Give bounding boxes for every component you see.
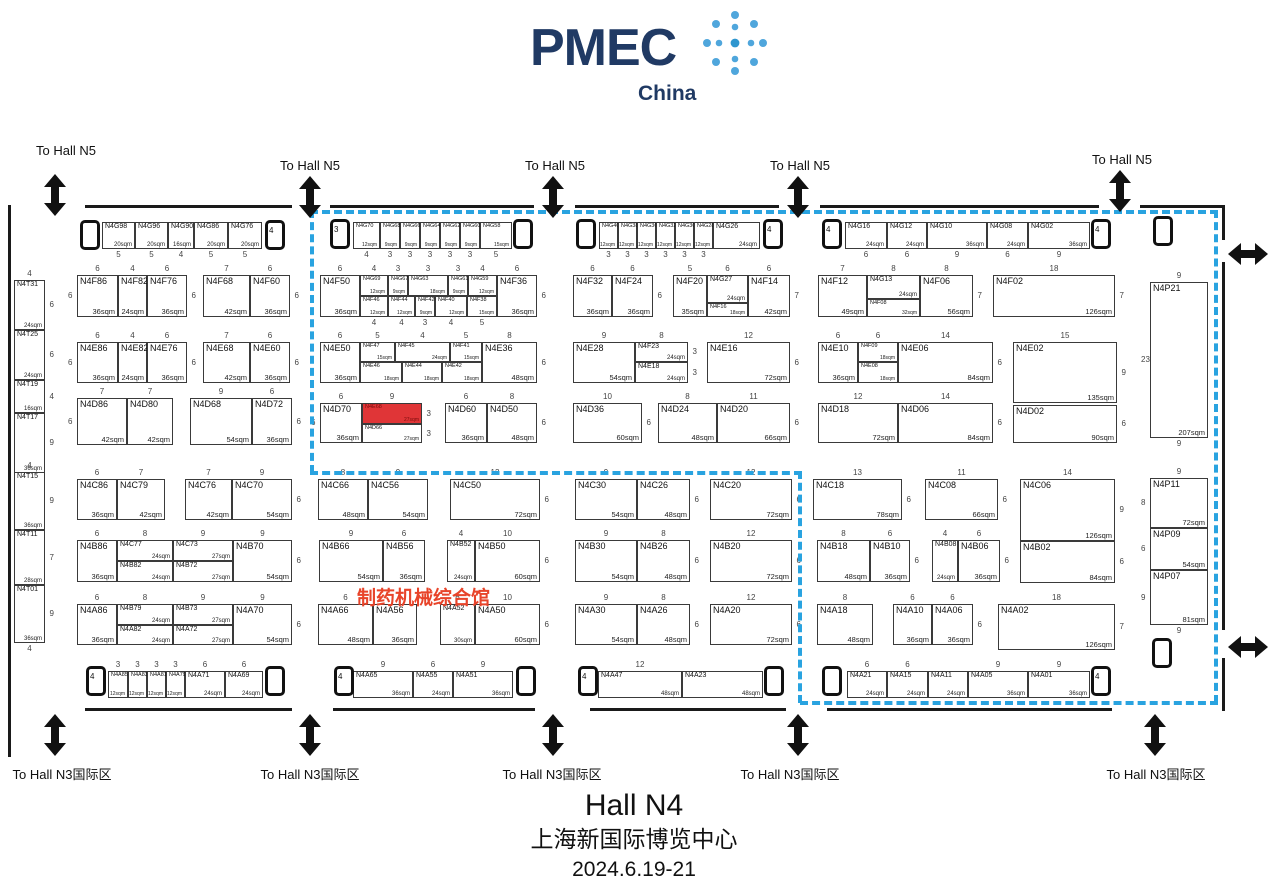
booth-area: 36sqm: [1069, 691, 1087, 697]
booth-number: N4A79: [169, 672, 186, 678]
booth-N4F23[interactable]: N4F2324sqm83: [635, 342, 688, 362]
booth-N4P07[interactable]: N4P0781sqm99: [1150, 570, 1208, 625]
booth-N4F40[interactable]: N4F4012sqm4: [435, 296, 467, 317]
booth-N4F42[interactable]: N4F429sqm3: [415, 296, 435, 317]
booth-area: 20sqm: [207, 242, 225, 248]
booth-N4G63[interactable]: N4G6318sqm3: [408, 275, 448, 296]
booth-area: 12sqm: [695, 242, 710, 248]
booth-N4C56[interactable]: N4C5654sqm9: [368, 479, 428, 520]
booth-N4E02[interactable]: N4E02135sqm159: [1013, 342, 1117, 403]
booth-N4C08[interactable]: N4C0866sqm116: [925, 479, 998, 520]
booth-area: 36sqm: [947, 635, 970, 644]
booth-number: N4G38: [621, 223, 638, 229]
booth-N4C73[interactable]: N4C7327sqm9: [173, 540, 233, 561]
booth-number: N4G64: [423, 223, 440, 229]
booth-N4D72[interactable]: N4D7236sqm66: [252, 398, 292, 445]
booth-area: 24sqm: [24, 323, 42, 329]
booth-N4G36[interactable]: N4G3612sqm3: [637, 222, 656, 249]
booth-N4E68[interactable]: N4E6827sqm93: [362, 403, 422, 424]
dimension-label: 18: [1050, 265, 1059, 273]
dimension-label: 6: [907, 496, 911, 504]
booth-N4F45[interactable]: N4F4524sqm4: [395, 342, 450, 362]
booth-N4A72[interactable]: N4A7227sqm: [173, 625, 233, 645]
booth-area: 84sqm: [967, 433, 990, 442]
booth-number: N4F44: [391, 297, 408, 303]
dimension-label: 9: [260, 469, 264, 477]
booth-N4D50[interactable]: N4D5048sqm86: [487, 403, 537, 443]
dimension-label: 9: [955, 251, 959, 259]
booth-N4F82[interactable]: N4F8224sqm4: [118, 275, 147, 317]
booth-N4A55[interactable]: N4A5524sqm6: [413, 671, 453, 698]
door-icon: [822, 666, 842, 696]
booth-number: N4D60: [448, 404, 476, 414]
booth-N4B10[interactable]: N4B1036sqm66: [870, 540, 910, 582]
entrance-arrow-icon: [542, 176, 564, 218]
booth-N4A26[interactable]: N4A2648sqm86: [637, 604, 690, 645]
booth-N4E86[interactable]: N4E8636sqm66: [77, 342, 118, 383]
booth-N4A82[interactable]: N4A8224sqm: [117, 625, 173, 645]
booth-N4E10[interactable]: N4E1036sqm6: [818, 342, 858, 383]
booth-N4A65[interactable]: N4A6536sqm9: [353, 671, 413, 698]
booth-number: N4F32: [576, 276, 603, 286]
booth-N4C79[interactable]: N4C7942sqm7: [117, 479, 165, 520]
dimension-label: 9: [1177, 468, 1181, 476]
door-icon: [1091, 219, 1111, 249]
door-icon: [80, 220, 100, 250]
booth-number: N4G63: [411, 276, 428, 282]
dimension-label: 9: [1177, 440, 1181, 448]
booth-N4G58[interactable]: N4G5815sqm5: [480, 222, 512, 249]
dimension-label: 6: [545, 621, 549, 629]
booth-N4A66[interactable]: N4A6648sqm6: [318, 604, 373, 645]
booth-N4D60[interactable]: N4D6036sqm6: [445, 403, 487, 443]
to-hall-n5-label: To Hall N5: [770, 158, 830, 173]
booth-N4D80[interactable]: N4D8042sqm7: [127, 398, 173, 445]
entrance-arrow-icon: [299, 714, 321, 756]
dimension-label: 6: [590, 265, 594, 273]
booth-N4A81[interactable]: N4A8112sqm3: [147, 671, 166, 698]
dimension-label: 12: [854, 393, 863, 401]
booth-area: 36sqm: [586, 307, 609, 316]
dimension-label: 5: [464, 332, 468, 340]
booth-number: N4C26: [640, 480, 668, 490]
booth-N4A21[interactable]: N4A2124sqm6: [847, 671, 887, 698]
booth-N4G26[interactable]: N4G2624sqm: [713, 222, 760, 249]
booth-N4B70[interactable]: N4B7054sqm96: [233, 540, 292, 582]
booth-N4E28[interactable]: N4E2854sqm9: [573, 342, 635, 383]
dimension-label: 6: [338, 332, 342, 340]
dimension-label: 4: [179, 251, 183, 259]
booth-N4G67[interactable]: N4G679sqm3: [388, 275, 408, 296]
to-hall-n5-label: To Hall N5: [280, 158, 340, 173]
booth-N4B52[interactable]: N4B5224sqm4: [447, 540, 475, 582]
booth-N4A70[interactable]: N4A7054sqm96: [233, 604, 292, 645]
booth-N4B30[interactable]: N4B3054sqm9: [575, 540, 637, 582]
booth-N4G59[interactable]: N4G5912sqm43: [468, 275, 497, 296]
booth-N4E06[interactable]: N4E0684sqm146: [898, 342, 993, 383]
booth-N4A83[interactable]: N4A8312sqm3: [128, 671, 147, 698]
dimension-label: 3: [663, 251, 667, 259]
booth-N4B18[interactable]: N4B1848sqm8: [817, 540, 870, 582]
booth-N4A10[interactable]: N4A1036sqm6: [893, 604, 932, 645]
dimension-label: 6: [1122, 420, 1126, 428]
booth-area: 54sqm: [402, 510, 425, 519]
booth-area: 72sqm: [766, 510, 789, 519]
booth-N4B72[interactable]: N4B7227sqm: [173, 561, 233, 582]
booth-N4D20[interactable]: N4D2066sqm116: [717, 403, 790, 443]
booth-N4C86[interactable]: N4C8636sqm6: [77, 479, 117, 520]
booth-N4A15[interactable]: N4A1524sqm6: [887, 671, 928, 698]
booth-N4E44[interactable]: N4E4418sqm: [402, 362, 442, 383]
booth-N4A79[interactable]: N4A7912sqm3: [166, 671, 185, 698]
booth-number: N4B26: [640, 541, 668, 551]
booth-number: N4A83: [131, 672, 148, 678]
dimension-label: 6: [192, 359, 196, 367]
booth-N4G27[interactable]: N4G2724sqm64: [707, 275, 748, 303]
booth-N4E60[interactable]: N4E6036sqm66: [250, 342, 290, 383]
wall: [575, 205, 779, 208]
dimension-label: 9: [1141, 594, 1145, 602]
booth-area: 126sqm: [1085, 640, 1112, 649]
booth-N4F41[interactable]: N4F4115sqm53: [450, 342, 482, 362]
booth-area: 42sqm: [206, 510, 229, 519]
booth-N4C50[interactable]: N4C5072sqm126: [450, 479, 540, 520]
dimension-label: 11: [957, 469, 965, 477]
booth-N4F47[interactable]: N4F4715sqm5: [360, 342, 395, 362]
booth-area: 12sqm: [129, 691, 144, 697]
booth-N4F86[interactable]: N4F8636sqm66: [77, 275, 118, 317]
booth-N4E46[interactable]: N4E4618sqm: [360, 362, 402, 383]
booth-number: N4T01: [17, 586, 38, 594]
booth-N4B06[interactable]: N4B0636sqm66: [958, 540, 1000, 582]
dimension-label: 6: [905, 251, 909, 259]
booth-N4F12[interactable]: N4F1249sqm7: [818, 275, 867, 317]
dimension-label: 8: [507, 332, 511, 340]
to-hall-n3-label: To Hall N3国际区: [503, 764, 602, 783]
dimension-label: 7: [224, 265, 228, 273]
booth-N4T15[interactable]: N4T1536sqm49: [14, 472, 45, 530]
booth-N4T19[interactable]: N4T1916sqm4: [14, 380, 45, 413]
booth-N4E08[interactable]: N4E0818sqm: [858, 362, 898, 383]
booth-N4F50[interactable]: N4F5036sqm6: [320, 275, 360, 317]
booth-number: N4T31: [17, 281, 38, 289]
booth-N4G38[interactable]: N4G3812sqm3: [618, 222, 637, 249]
booth-number: N4A26: [640, 605, 668, 615]
booth-N4G08[interactable]: N4G0824sqm6: [987, 222, 1028, 249]
booth-area: 36sqm: [974, 572, 997, 581]
booth-N4D24[interactable]: N4D2448sqm8: [658, 403, 717, 443]
booth-area: 12sqm: [600, 242, 615, 248]
booth-number: N4E86: [80, 343, 108, 353]
booth-area: 18sqm: [464, 376, 479, 382]
door-width-label: 4: [767, 225, 771, 234]
booth-area: 48sqm: [742, 691, 760, 697]
booth-N4C26[interactable]: N4C2648sqm6: [637, 479, 690, 520]
booth-number: N4F68: [206, 276, 233, 286]
dimension-label: 6: [910, 594, 914, 602]
booth-N4D66[interactable]: N4D6627sqm3: [362, 424, 422, 443]
booth-N4G16[interactable]: N4G1624sqm6: [845, 222, 887, 249]
booth-N4F60[interactable]: N4F6036sqm66: [250, 275, 290, 317]
booth-area: 24sqm: [907, 691, 925, 697]
booth-N4T25[interactable]: N4T2524sqm6: [14, 330, 45, 380]
booth-N4C70[interactable]: N4C7054sqm96: [232, 479, 292, 520]
booth-area: 56sqm: [947, 307, 970, 316]
booth-area: 20sqm: [147, 242, 165, 248]
booth-N4F16[interactable]: N4F1618sqm3: [707, 303, 748, 317]
booth-N4C76[interactable]: N4C7642sqm7: [185, 479, 232, 520]
booth-N4G10[interactable]: N4G1036sqm9: [927, 222, 987, 249]
booth-number: N4F41: [453, 343, 470, 349]
dimension-label: 3: [408, 251, 412, 259]
booth-N4B66[interactable]: N4B6654sqm9: [319, 540, 383, 582]
booth-N4A06[interactable]: N4A0636sqm66: [932, 604, 973, 645]
booth-number: N4A05: [971, 672, 992, 680]
booth-N4A20[interactable]: N4A2072sqm126: [710, 604, 792, 645]
booth-N4G13[interactable]: N4G1324sqm83: [867, 275, 920, 299]
booth-N4G62[interactable]: N4G629sqm3: [440, 222, 460, 249]
booth-N4F14[interactable]: N4F1442sqm67: [748, 275, 790, 317]
hall-title: Hall N4: [0, 788, 1268, 824]
booth-number: N4A02: [1001, 605, 1029, 615]
dimension-label: 9: [260, 594, 264, 602]
booth-N4B86[interactable]: N4B8636sqm6: [77, 540, 117, 582]
booth-N4D86[interactable]: N4D8642sqm76: [77, 398, 127, 445]
booth-N4C06[interactable]: N4C06126sqm149: [1020, 479, 1115, 541]
booth-N4A69[interactable]: N4A6924sqm6: [225, 671, 263, 698]
door-icon: [1091, 666, 1111, 696]
booth-N4A30[interactable]: N4A3054sqm9: [575, 604, 637, 645]
booth-N4P11[interactable]: N4P1172sqm98: [1150, 478, 1208, 528]
booth-number: N4D50: [490, 404, 518, 414]
booth-N4D18[interactable]: N4D1872sqm12: [818, 403, 898, 443]
booth-N4T31[interactable]: N4T3124sqm46: [14, 280, 45, 330]
entrance-arrow-icon: [1109, 170, 1131, 212]
booth-number: N4F40: [438, 297, 455, 303]
dimension-label: 8: [661, 530, 665, 538]
booth-N4F36[interactable]: N4F3636sqm66: [497, 275, 537, 317]
booth-N4A23[interactable]: N4A2348sqm: [682, 671, 763, 698]
dimension-label: 5: [688, 265, 692, 273]
door-width-label: 4: [1095, 225, 1099, 234]
booth-N4E82[interactable]: N4E8224sqm4: [118, 342, 147, 383]
booth-N4B20[interactable]: N4B2072sqm126: [710, 540, 792, 582]
booth-number: N4B02: [1023, 542, 1051, 552]
door-icon: [1153, 216, 1173, 246]
booth-number: N4A71: [188, 672, 209, 680]
booth-N4T11[interactable]: N4T1128sqm7: [14, 530, 45, 585]
booth-area: 48sqm: [844, 572, 867, 581]
dimension-label: 6: [950, 594, 954, 602]
booth-area: 54sqm: [226, 435, 249, 444]
booth-N4E50[interactable]: N4E5036sqm6: [320, 342, 360, 383]
booth-N4F68[interactable]: N4F6842sqm7: [203, 275, 250, 317]
booth-number: N4B08: [935, 541, 956, 549]
booth-area: 9sqm: [405, 242, 417, 248]
dimension-label: 4: [399, 319, 403, 327]
booth-number: N4B50: [478, 541, 506, 551]
booth-N4A71[interactable]: N4A7124sqm6: [185, 671, 225, 698]
booth-N4G90[interactable]: N4G9016sqm4: [168, 222, 194, 249]
booth-N4D06[interactable]: N4D0684sqm146: [898, 403, 993, 443]
booth-N4B56[interactable]: N4B5636sqm6: [383, 540, 425, 582]
booth-N4B08[interactable]: N4B0824sqm4: [932, 540, 958, 582]
booth-N4D36[interactable]: N4D3660sqm106: [573, 403, 642, 443]
booth-N4F44[interactable]: N4F4412sqm4: [388, 296, 415, 317]
booth-area: 32sqm: [902, 310, 917, 316]
booth-area: 24sqm: [152, 618, 170, 624]
booth-N4P21[interactable]: N4P21207sqm9239: [1150, 282, 1208, 438]
dimension-label: 13: [853, 469, 862, 477]
booth-area: 54sqm: [266, 510, 289, 519]
dimension-label: 6: [836, 332, 840, 340]
booth-N4A05[interactable]: N4A0536sqm9: [968, 671, 1028, 698]
booth-N4G70[interactable]: N4G7012sqm4: [353, 222, 380, 249]
booth-N4D68[interactable]: N4D6854sqm9: [190, 398, 252, 445]
booth-N4C30[interactable]: N4C3054sqm9: [575, 479, 637, 520]
booth-N4F20[interactable]: N4F2035sqm5: [673, 275, 707, 317]
booth-area: 60sqm: [616, 433, 639, 442]
booth-N4G64[interactable]: N4G649sqm3: [420, 222, 440, 249]
booth-number: N4A81: [150, 672, 167, 678]
booth-N4G30[interactable]: N4G3012sqm3: [675, 222, 694, 249]
booth-N4A50[interactable]: N4A5060sqm106: [475, 604, 540, 645]
booth-area: 36sqm: [334, 373, 357, 382]
booth-area: 27sqm: [212, 575, 230, 581]
booth-number: N4G36: [640, 223, 657, 229]
booth-area: 126sqm: [1085, 531, 1112, 540]
dimension-label: 3: [625, 251, 629, 259]
booth-N4F02[interactable]: N4F02126sqm187: [993, 275, 1115, 317]
booth-N4T01[interactable]: N4T0136sqm94: [14, 585, 45, 643]
booth-N4B02[interactable]: N4B0284sqm6: [1020, 541, 1115, 583]
booth-area: 24sqm: [24, 373, 42, 379]
booth-number: N4G12: [890, 223, 912, 231]
booth-N4G40[interactable]: N4G4012sqm3: [599, 222, 618, 249]
booth-N4G32[interactable]: N4G3212sqm3: [656, 222, 675, 249]
booth-area: 27sqm: [212, 618, 230, 624]
booth-area: 36sqm: [91, 572, 114, 581]
booth-N4G61[interactable]: N4G619sqm3: [448, 275, 468, 296]
booth-N4A85[interactable]: N4A8512sqm3: [108, 671, 128, 698]
booth-N4B50[interactable]: N4B5060sqm106: [475, 540, 540, 582]
booth-N4G86[interactable]: N4G8620sqm5: [194, 222, 228, 249]
booth-N4G69[interactable]: N4G6912sqm4: [360, 275, 388, 296]
booth-number: N4E36: [485, 343, 513, 353]
booth-N4D02[interactable]: N4D0290sqm6: [1013, 405, 1117, 443]
booth-area: 66sqm: [764, 433, 787, 442]
booth-area: 36sqm: [161, 373, 184, 382]
wall: [8, 205, 11, 757]
dimension-label: 9: [50, 497, 54, 505]
dimension-label: 6: [203, 661, 207, 669]
booth-area: 36sqm: [264, 373, 287, 382]
dimension-label: 4: [130, 332, 134, 340]
dimension-label: 4: [420, 332, 424, 340]
booth-number: N4G68: [383, 223, 400, 229]
booth-N4G60[interactable]: N4G609sqm3: [460, 222, 480, 249]
door-icon: [764, 666, 784, 696]
booth-area: 36sqm: [832, 373, 855, 382]
booth-N4G02[interactable]: N4G0236sqm9: [1028, 222, 1090, 249]
booth-area: 15sqm: [494, 242, 509, 248]
booth-N4A01[interactable]: N4A0136sqm9: [1028, 671, 1090, 698]
booth-N4G66[interactable]: N4G669sqm3: [400, 222, 420, 249]
booth-N4A56[interactable]: N4A5636sqm: [373, 604, 417, 645]
booth-N4F46[interactable]: N4F4612sqm4: [360, 296, 388, 317]
booth-N4G28[interactable]: N4G2812sqm3: [694, 222, 713, 249]
booth-N4C77[interactable]: N4C7724sqm8: [117, 540, 173, 561]
booth-N4C18[interactable]: N4C1878sqm136: [813, 479, 902, 520]
booth-N4A52[interactable]: N4A5230sqm6: [440, 604, 475, 645]
floor-plan-page: PMEC China N4G9820sqm5N4G9620sqm5N4G9016…: [0, 0, 1268, 895]
booth-N4F76[interactable]: N4F7636sqm66: [147, 275, 187, 317]
booth-N4E76[interactable]: N4E7636sqm66: [147, 342, 187, 383]
booth-N4B79[interactable]: N4B7924sqm8: [117, 604, 173, 625]
booth-N4P09[interactable]: N4P0954sqm6: [1150, 528, 1208, 570]
booth-area: 18sqm: [730, 310, 745, 316]
booth-area: 36sqm: [91, 510, 114, 519]
booth-N4C66[interactable]: N4C6648sqm8: [318, 479, 368, 520]
booth-N4E68[interactable]: N4E6842sqm7: [203, 342, 250, 383]
door-icon: [1152, 638, 1172, 668]
entrance-arrow-icon: [787, 714, 809, 756]
dimension-label: 5: [480, 319, 484, 327]
booth-number: N4A06: [935, 605, 963, 615]
booth-N4F08[interactable]: N4F0832sqm4: [867, 299, 920, 317]
door-width-label: 4: [582, 672, 586, 681]
dimension-label: 5: [209, 251, 213, 259]
dimension-label: 7: [1120, 623, 1124, 631]
booth-N4A86[interactable]: N4A8636sqm6: [77, 604, 117, 645]
booth-area: 48sqm: [511, 433, 534, 442]
booth-N4E18[interactable]: N4E1824sqm3: [635, 362, 688, 383]
booth-N4A51[interactable]: N4A5136sqm9: [453, 671, 513, 698]
booth-N4G76[interactable]: N4G7620sqm5: [228, 222, 262, 249]
booth-N4F32[interactable]: N4F3236sqm6: [573, 275, 612, 317]
dimension-label: 11: [749, 393, 757, 401]
booth-N4G68[interactable]: N4G689sqm3: [380, 222, 400, 249]
booth-N4B82[interactable]: N4B8224sqm: [117, 561, 173, 582]
booth-N4F06[interactable]: N4F0656sqm87: [920, 275, 973, 317]
booth-N4E16[interactable]: N4E1672sqm126: [707, 342, 790, 383]
booth-area: 24sqm: [204, 691, 222, 697]
booth-area: 15sqm: [479, 310, 494, 316]
booth-N4E42[interactable]: N4E4218sqm3: [442, 362, 482, 383]
booth-N4F09[interactable]: N4F0918sqm6: [858, 342, 898, 362]
booth-number: N4E16: [710, 343, 738, 353]
booth-N4A11[interactable]: N4A1124sqm: [928, 671, 968, 698]
booth-N4G98[interactable]: N4G9820sqm5: [102, 222, 135, 249]
booth-N4G96[interactable]: N4G9620sqm5: [135, 222, 168, 249]
booth-N4B73[interactable]: N4B7327sqm9: [173, 604, 233, 625]
booth-number: N4B30: [578, 541, 606, 551]
booth-N4B26[interactable]: N4B2648sqm86: [637, 540, 690, 582]
booth-N4D70[interactable]: N4D7036sqm66: [320, 403, 362, 443]
booth-N4F38[interactable]: N4F3815sqm53: [467, 296, 497, 317]
booth-N4C20[interactable]: N4C2072sqm126: [710, 479, 792, 520]
booth-N4A02[interactable]: N4A02126sqm187: [998, 604, 1115, 650]
booth-number: N4B72: [176, 562, 197, 570]
dimension-label: 7: [50, 554, 54, 562]
booth-N4G12[interactable]: N4G1224sqm6: [887, 222, 927, 249]
booth-area: 24sqm: [727, 296, 745, 302]
dimension-label: 10: [503, 530, 512, 538]
booth-N4A47[interactable]: N4A4748sqm12: [598, 671, 682, 698]
booth-N4E36[interactable]: N4E3648sqm86: [482, 342, 537, 383]
booth-N4A18[interactable]: N4A1848sqm8: [817, 604, 873, 645]
booth-N4F24[interactable]: N4F2436sqm66: [612, 275, 653, 317]
